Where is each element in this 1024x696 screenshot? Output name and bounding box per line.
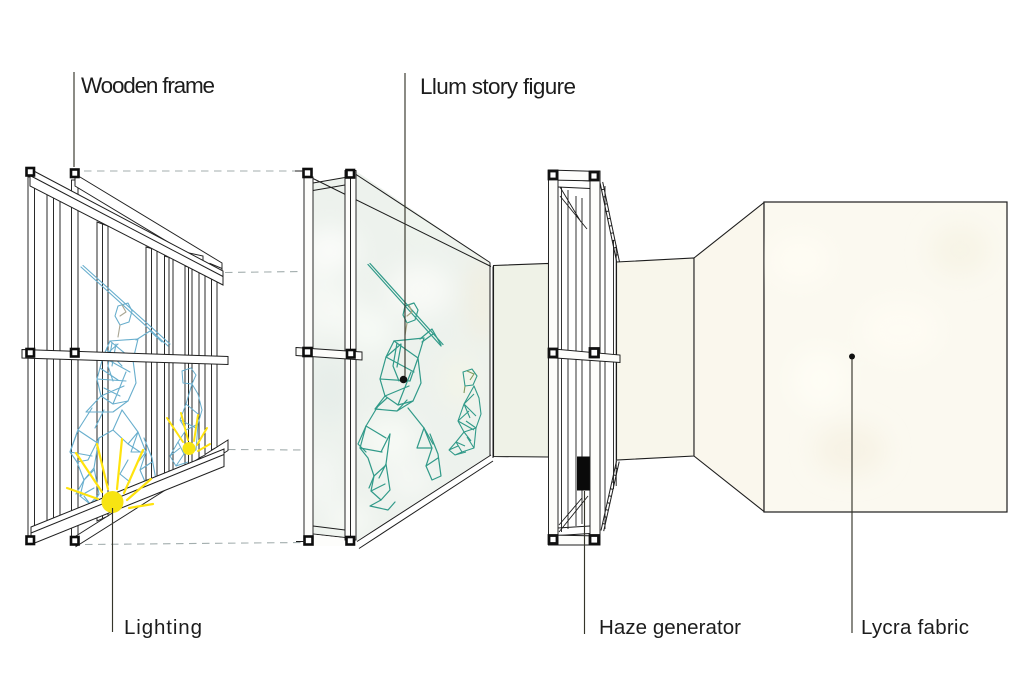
- svg-text:Wooden frame: Wooden frame: [81, 73, 215, 98]
- svg-text:Haze generator: Haze generator: [599, 616, 741, 639]
- svg-text:Lycra fabric: Lycra fabric: [861, 616, 969, 639]
- svg-text:Lighting: Lighting: [124, 616, 202, 639]
- svg-text:Llum story figure: Llum story figure: [420, 74, 576, 99]
